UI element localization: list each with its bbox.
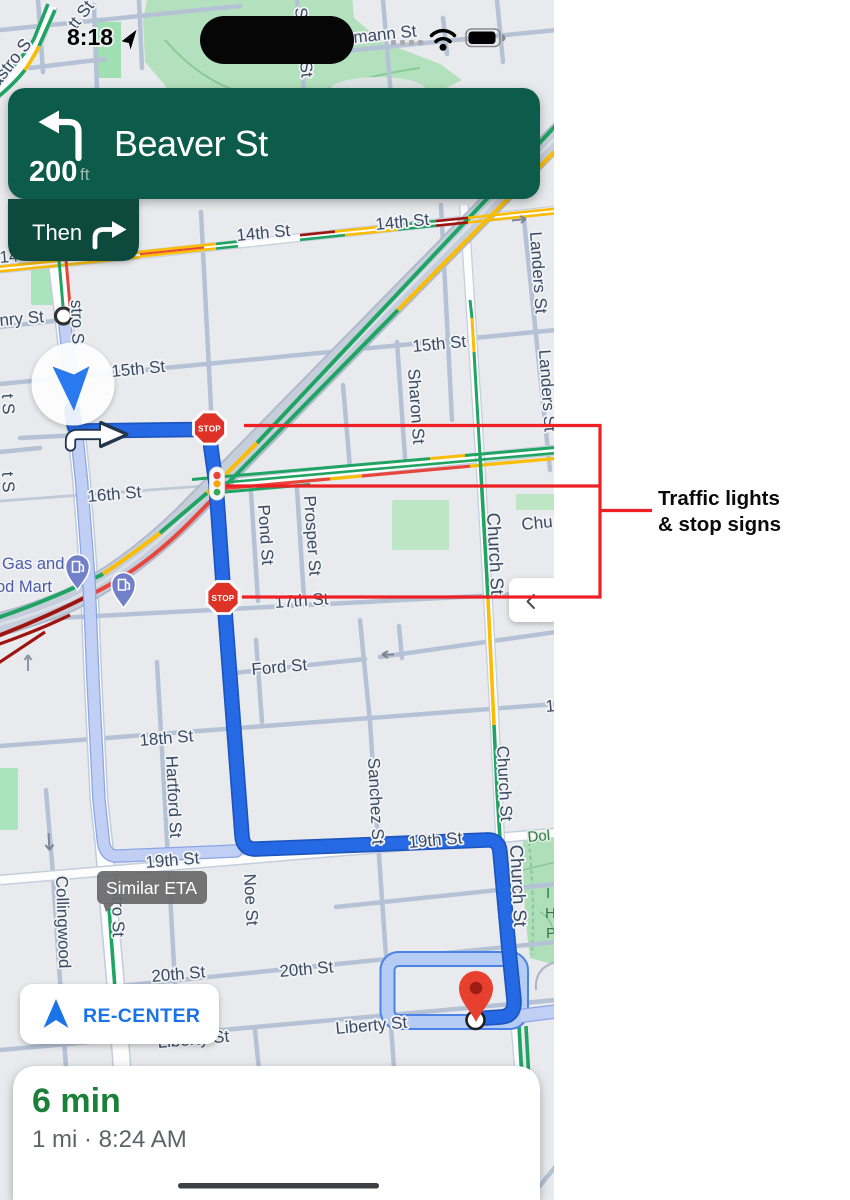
- svg-text:Church St: Church St: [493, 745, 516, 822]
- svg-text:Church St: Church St: [483, 512, 508, 595]
- svg-text:t S: t S: [0, 471, 18, 493]
- svg-text:nry St: nry St: [0, 307, 45, 330]
- svg-text:Traffic lights: Traffic lights: [658, 487, 780, 510]
- svg-text:& stop signs: & stop signs: [658, 513, 781, 536]
- svg-text:Similar ETA: Similar ETA: [106, 878, 197, 898]
- svg-text:Chu: Chu: [521, 512, 554, 534]
- svg-text:I: I: [546, 885, 550, 902]
- svg-text:Then: Then: [32, 220, 82, 245]
- svg-text:STOP: STOP: [198, 425, 221, 434]
- svg-text:Noe St: Noe St: [240, 873, 262, 926]
- svg-text:Collingwood: Collingwood: [52, 875, 74, 968]
- svg-text:200: 200: [29, 156, 77, 188]
- svg-text:Gas and: Gas and: [2, 555, 64, 573]
- svg-text:t S: t S: [0, 393, 18, 415]
- svg-text:8:18: 8:18: [67, 24, 113, 50]
- svg-text:RE-CENTER: RE-CENTER: [83, 1005, 200, 1027]
- svg-text:1 mi · 8:24 AM: 1 mi · 8:24 AM: [32, 1126, 187, 1153]
- svg-text:stro S: stro S: [67, 299, 88, 344]
- svg-text:Beaver St: Beaver St: [114, 123, 268, 164]
- svg-text:ft: ft: [80, 165, 90, 184]
- svg-text:6 min: 6 min: [32, 1082, 121, 1120]
- svg-text:STOP: STOP: [212, 594, 235, 603]
- svg-text:Church St: Church St: [506, 844, 531, 927]
- svg-text:Dol: Dol: [527, 827, 551, 846]
- svg-text:17th St: 17th St: [274, 589, 329, 612]
- svg-text:od Mart: od Mart: [0, 578, 52, 596]
